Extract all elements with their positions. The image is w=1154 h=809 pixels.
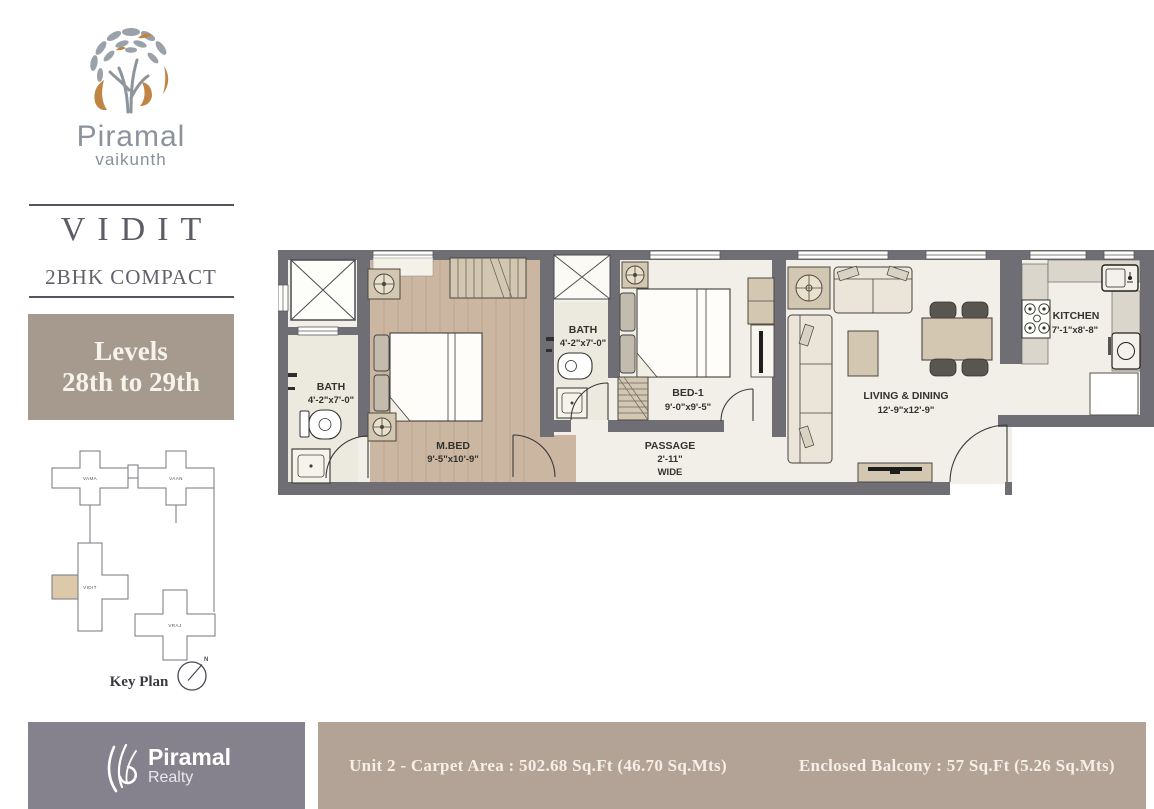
levels-box: Levels 28th to 29th	[28, 314, 234, 420]
keyplan-label-vama: VAMA	[83, 476, 98, 481]
levels-line2: 28th to 29th	[28, 367, 234, 398]
void-duct	[291, 260, 355, 320]
piramal-realty-icon	[102, 739, 138, 793]
faucet-icon	[288, 373, 297, 377]
corner-table-lamp-icon	[788, 267, 830, 309]
north-label: N	[204, 657, 208, 663]
kitchen-label: KITCHEN	[1053, 310, 1100, 322]
wardrobe-icon	[450, 258, 526, 298]
passage-label: PASSAGE	[645, 440, 696, 452]
divider-top	[29, 204, 234, 206]
keyplan-highlighted-unit	[52, 575, 78, 599]
footer-logo-box: Piramal Realty	[28, 722, 305, 809]
floorplan-page: Piramal vaikunth VIDIT 2BHK COMPACT Leve…	[0, 0, 1154, 809]
keyplan-connector	[128, 465, 138, 478]
washing-machine-icon	[1108, 333, 1140, 369]
bath2-shower	[554, 255, 610, 299]
footer-logo-sub: Realty	[148, 769, 231, 787]
hob-icon	[1022, 300, 1050, 338]
brand-subtitle: vaikunth	[28, 150, 234, 170]
keyplan-label-vidit: VIDIT	[83, 585, 97, 590]
coffee-table-icon	[848, 331, 878, 376]
side-table-lamp-icon	[368, 269, 400, 299]
tv-icon	[759, 331, 763, 373]
keyplan-label-vraj: VRAJ	[168, 623, 181, 628]
footer-logo-name: Piramal	[148, 745, 231, 769]
levels-line1: Levels	[28, 336, 234, 367]
bath2-dim: 4'-2"x7'-0"	[560, 338, 606, 349]
bath1-label: BATH	[317, 381, 345, 393]
tree-icon	[89, 28, 168, 112]
mbed-dim: 9'-5"x10'-9"	[427, 454, 479, 465]
faucet-icon	[546, 337, 554, 341]
piramal-vaikunth-logo	[76, 20, 186, 120]
fridge-icon	[1090, 373, 1138, 415]
tv-unit-icon	[858, 463, 932, 482]
key-plan: VAMA VAAN VIDIT VRAJ N Key Plan	[40, 443, 220, 698]
bed1-dim: 9'-0"x9'-5"	[665, 402, 711, 413]
carpet-area-text: Unit 2 - Carpet Area : 502.68 Sq.Ft (46.…	[349, 756, 727, 776]
side-table-lamp-icon	[622, 262, 648, 288]
living-dim: 12'-9"x12'-9"	[878, 405, 935, 416]
double-bed-icon	[374, 333, 482, 421]
wardrobe-icon	[618, 377, 648, 420]
side-table-lamp-icon	[368, 413, 396, 441]
sofa-icon	[834, 266, 912, 313]
divider-bottom	[29, 296, 234, 298]
enclosed-balcony-text: Enclosed Balcony : 57 Sq.Ft (5.26 Sq.Mts…	[799, 756, 1115, 776]
unit-name: VIDIT	[28, 211, 234, 249]
passage-dim: 2'-11"	[657, 454, 682, 465]
bed1-label: BED-1	[672, 387, 704, 399]
compass-icon: N	[178, 657, 208, 690]
key-plan-title: Key Plan	[110, 674, 169, 690]
sofa-icon	[788, 315, 832, 463]
toilet-icon	[558, 353, 592, 379]
unit-type: 2BHK COMPACT	[28, 265, 234, 290]
shower-tray-icon	[292, 449, 330, 483]
bath2-label: BATH	[569, 324, 597, 336]
passage-note: WIDE	[658, 467, 683, 478]
sink-icon	[1102, 265, 1138, 291]
mbed-label: M.BED	[436, 440, 470, 452]
bed-icon	[620, 289, 730, 377]
kitchen-dim: 7'-1"x8'-8"	[1052, 325, 1098, 336]
floor-plan: BATH 4'-2"x7'-0"	[278, 245, 1154, 505]
brand-name: Piramal	[28, 120, 234, 154]
bath1-dim: 4'-2"x7'-0"	[308, 395, 354, 406]
storage-tv-unit	[748, 278, 774, 377]
toilet-icon	[300, 410, 341, 439]
living-label: LIVING & DINING	[863, 390, 948, 402]
keyplan-label-vaan: VAAN	[169, 476, 183, 481]
footer-area-bar: Unit 2 - Carpet Area : 502.68 Sq.Ft (46.…	[318, 722, 1146, 809]
